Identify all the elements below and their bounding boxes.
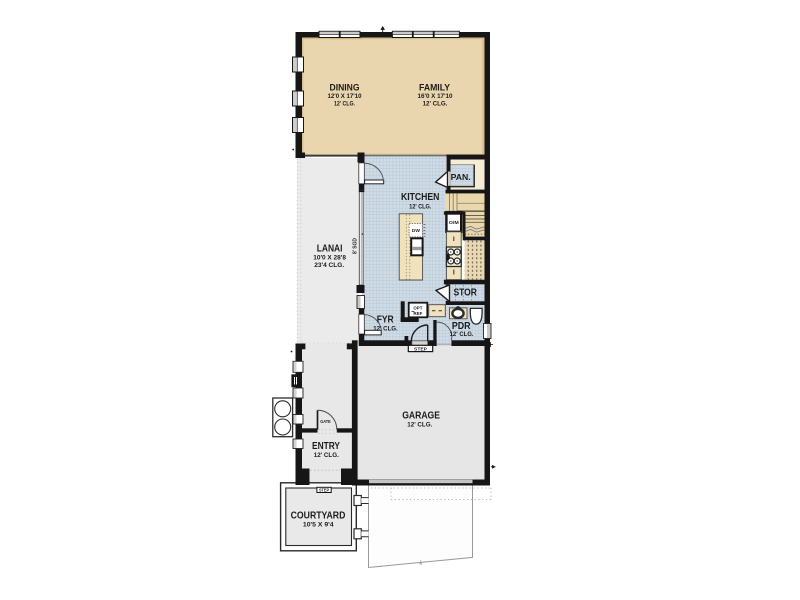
svg-text:12' CLG.: 12' CLG.: [409, 204, 431, 211]
svg-text:PAN.: PAN.: [451, 173, 471, 182]
svg-text:KITCHEN: KITCHEN: [401, 192, 440, 203]
svg-text:10'0 X 28'8: 10'0 X 28'8: [313, 255, 346, 262]
svg-text:12'0 X 17'10: 12'0 X 17'10: [328, 93, 362, 100]
svg-text:OPT: OPT: [413, 306, 422, 311]
svg-text:DW: DW: [412, 228, 421, 233]
svg-text:ENTRY: ENTRY: [312, 441, 340, 452]
svg-text:COURTYARD: COURTYARD: [291, 511, 346, 522]
svg-text:STEP: STEP: [319, 488, 329, 493]
svg-text:FAMILY: FAMILY: [419, 83, 451, 94]
svg-text:STEP: STEP: [414, 346, 428, 352]
svg-text:12' CLG.: 12' CLG.: [314, 452, 339, 459]
svg-text:10'5 X 9'4: 10'5 X 9'4: [303, 521, 334, 528]
svg-text:23'4 CLG.: 23'4 CLG.: [314, 262, 344, 269]
svg-text:O/M: O/M: [449, 220, 459, 226]
svg-text:12' CLG.: 12' CLG.: [450, 331, 474, 338]
svg-text:12' CLG.: 12' CLG.: [423, 101, 448, 108]
svg-text:FYR: FYR: [377, 315, 394, 326]
svg-text:REF: REF: [413, 311, 422, 316]
svg-text:16'0 X 17'10: 16'0 X 17'10: [418, 93, 453, 100]
svg-text:12' CLG.: 12' CLG.: [334, 101, 355, 108]
svg-text:DINING: DINING: [330, 83, 360, 94]
svg-text:GARAGE: GARAGE: [402, 410, 440, 421]
svg-text:12' CLG.: 12' CLG.: [373, 325, 398, 332]
svg-text:GATE: GATE: [320, 419, 331, 424]
svg-text:12' CLG.: 12' CLG.: [407, 421, 432, 428]
svg-text:STOR: STOR: [453, 288, 477, 299]
svg-text:8' SGD: 8' SGD: [352, 238, 358, 254]
svg-text:LANAI: LANAI: [317, 244, 343, 255]
